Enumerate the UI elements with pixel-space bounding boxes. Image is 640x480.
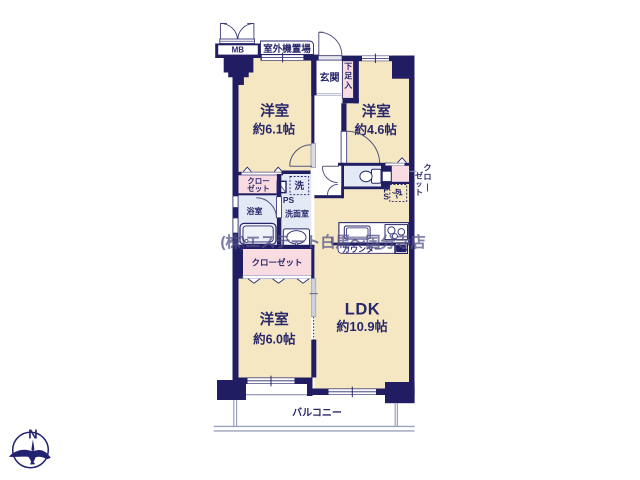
svg-text:クローゼット: クローゼット (251, 258, 302, 268)
svg-text:ロ: ロ (424, 173, 432, 182)
svg-text:洗: 洗 (295, 180, 305, 192)
svg-text:ゼ: ゼ (415, 171, 423, 181)
svg-text:(株)エステート白馬〜国分寺店: (株)エステート白馬〜国分寺店 (221, 233, 426, 251)
svg-text:玄関: 玄関 (320, 71, 340, 84)
svg-text:約6.1帖: 約6.1帖 (253, 122, 296, 137)
svg-text:洋室: 洋室 (260, 310, 289, 328)
svg-text:S: S (383, 192, 389, 202)
svg-text:下: 下 (344, 62, 352, 71)
svg-text:約4.6帖: 約4.6帖 (355, 122, 398, 137)
svg-text:PS: PS (283, 195, 295, 205)
svg-text:洗面室: 洗面室 (285, 208, 309, 218)
svg-text:LDK: LDK (345, 300, 380, 318)
svg-text:ク: ク (424, 163, 432, 173)
svg-text:浴室: 浴室 (247, 206, 263, 216)
svg-text:入: 入 (343, 81, 352, 90)
svg-text:足: 足 (344, 72, 353, 81)
svg-text:室外機置場: 室外機置場 (263, 43, 311, 55)
svg-text:N: N (28, 427, 37, 442)
svg-text:ゼット: ゼット (247, 183, 270, 193)
svg-text:ト: ト (415, 188, 423, 197)
svg-text:MB: MB (232, 46, 245, 55)
svg-text:洋室: 洋室 (362, 102, 391, 120)
svg-text:バルコニー: バルコニー (292, 407, 342, 419)
svg-text:約6.0帖: 約6.0帖 (253, 332, 296, 347)
svg-text:洋室: 洋室 (260, 102, 289, 120)
svg-text:約10.9帖: 約10.9帖 (336, 319, 387, 334)
